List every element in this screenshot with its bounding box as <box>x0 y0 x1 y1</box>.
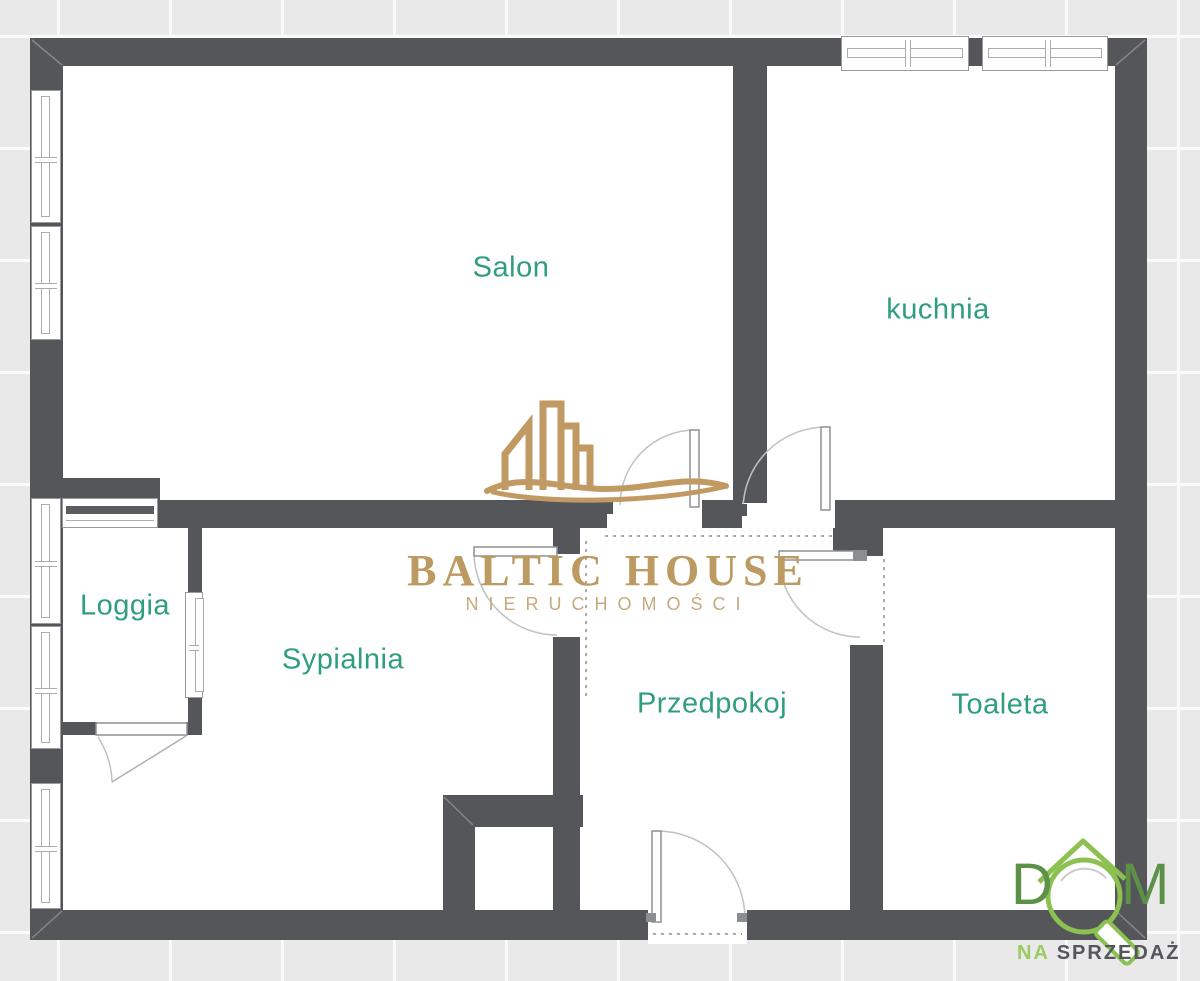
logo-letter-m: M <box>1121 856 1169 914</box>
building-skyline-icon <box>483 390 733 510</box>
agency-logo: D M NA SPRZEDAŻ <box>1003 826 1183 971</box>
logo-letter-d: D <box>1011 856 1053 914</box>
room-label-salon: Salon <box>473 252 550 285</box>
room-label-kuchnia: kuchnia <box>886 294 989 327</box>
room-label-przedpokoj: Przedpokoj <box>637 688 787 721</box>
kuchnia-door <box>737 427 830 516</box>
floor-plan: Salon kuchnia Loggia Sypialnia Przedpoko… <box>0 0 1200 981</box>
loggia-door <box>96 723 187 782</box>
watermark-subtitle: NIERUCHOMOŚCI <box>465 594 750 615</box>
logo-tagline-prefix: NA <box>1017 942 1049 964</box>
watermark-title: BALTIC HOUSE <box>407 545 809 596</box>
room-label-toaleta: Toaleta <box>951 689 1048 722</box>
room-label-sypialnia: Sypialnia <box>282 644 404 677</box>
logo-tagline-suffix: SPRZEDAŻ <box>1049 942 1180 964</box>
entrance-door <box>646 831 747 922</box>
logo-tagline: NA SPRZEDAŻ <box>1017 942 1181 965</box>
room-label-loggia: Loggia <box>80 590 170 623</box>
